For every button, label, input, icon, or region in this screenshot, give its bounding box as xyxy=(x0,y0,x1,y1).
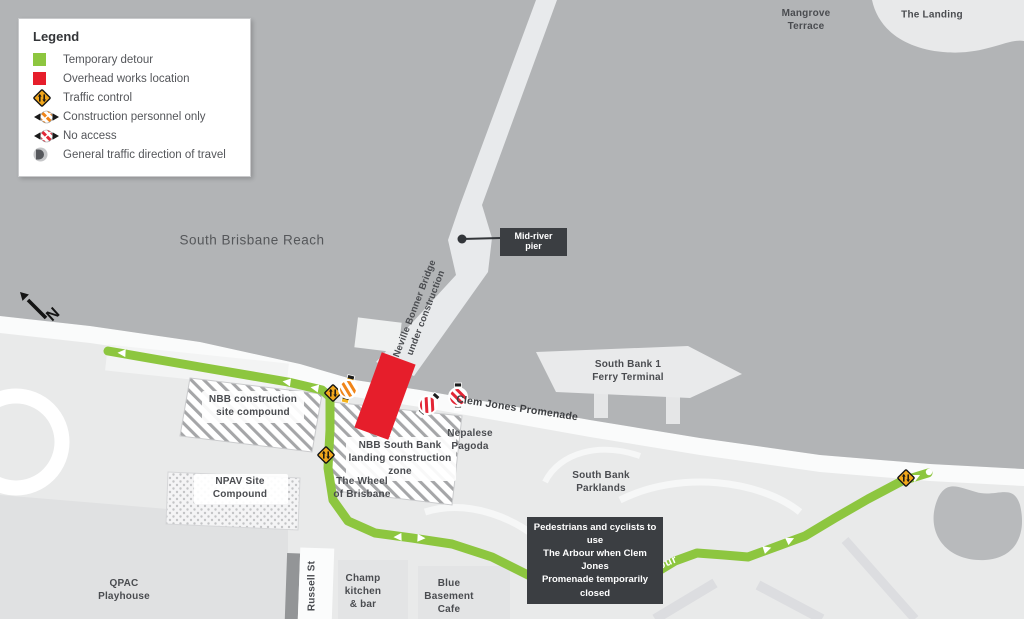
label-wheel-of-brisbane: The Wheel of Brisbane xyxy=(333,476,390,502)
direction-of-travel-icon xyxy=(33,147,48,162)
legend-item-label: Traffic control xyxy=(63,92,132,104)
legend-item-temporary-detour: Temporary detour xyxy=(33,50,238,69)
legend-item-label: Temporary detour xyxy=(63,54,153,66)
legend-item-construction-personnel: Construction personnel only xyxy=(33,107,238,126)
detour-map: N South Brisbane Reach Mangrove Terrace … xyxy=(0,0,1024,619)
label-south-brisbane-reach: South Brisbane Reach xyxy=(179,231,324,248)
temporary-detour-swatch xyxy=(33,53,46,66)
legend-title: Legend xyxy=(33,29,238,44)
legend-item-direction-of-travel: General traffic direction of travel xyxy=(33,145,238,164)
label-nbb-compound: NBB construction site compound xyxy=(209,394,297,420)
label-blue-basement: Blue Basement Cafe xyxy=(424,578,473,616)
traffic-control-icon xyxy=(33,89,51,107)
legend: Legend Temporary detour Overhead works l… xyxy=(18,18,251,177)
legend-item-label: No access xyxy=(63,130,117,142)
label-the-landing: The Landing xyxy=(901,10,963,23)
construction-personnel-only-icon xyxy=(33,110,60,124)
label-npav: NPAV Site Compound xyxy=(213,476,267,502)
legend-item-label: Overhead works location xyxy=(63,73,190,85)
callout-arbour-note: Pedestrians and cyclists to use The Arbo… xyxy=(527,517,663,604)
label-mangrove-terrace: Mangrove Terrace xyxy=(782,8,831,34)
label-qpac: QPAC Playhouse xyxy=(98,578,150,604)
legend-item-traffic-control: Traffic control xyxy=(33,88,238,107)
legend-item-overhead-works: Overhead works location xyxy=(33,69,238,88)
no-access-icon xyxy=(33,129,60,143)
label-parklands: South Bank Parklands xyxy=(572,470,630,496)
pond xyxy=(934,486,1022,560)
label-ferry-terminal: South Bank 1 Ferry Terminal xyxy=(592,359,664,385)
legend-item-no-access: No access xyxy=(33,126,238,145)
label-nepalese-pagoda: Nepalese Pagoda xyxy=(447,428,493,454)
callout-mid-river-pier: Mid-river pier xyxy=(500,228,567,256)
label-champ: Champ kitchen & bar xyxy=(345,573,381,611)
legend-item-label: General traffic direction of travel xyxy=(63,149,226,161)
mid-river-pier-dot xyxy=(458,235,467,244)
legend-item-label: Construction personnel only xyxy=(63,111,206,123)
label-russell-st: Russell St xyxy=(307,561,320,611)
overhead-works-swatch xyxy=(33,72,46,85)
label-nbb-landing-zone: NBB South Bank landing construction zone xyxy=(349,440,452,478)
